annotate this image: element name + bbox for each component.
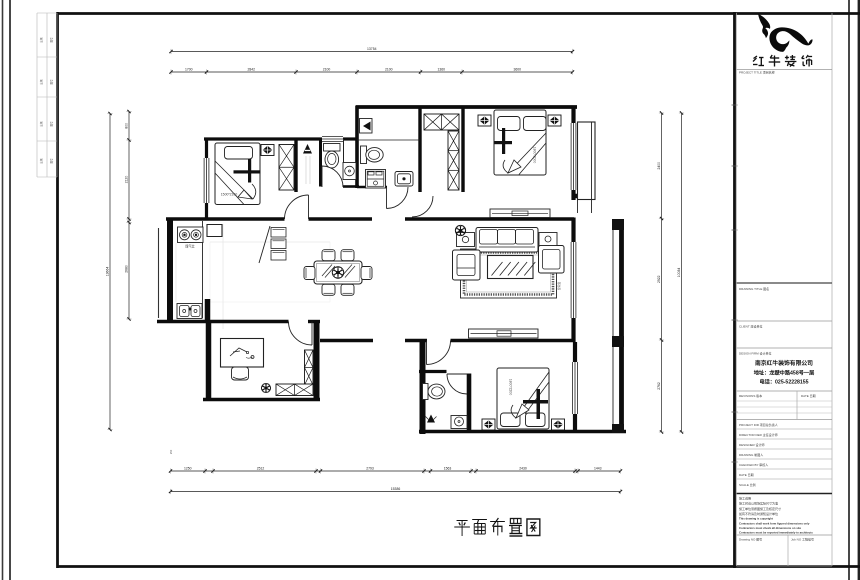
svg-text:1800*2000: 1800*2000 <box>533 147 537 164</box>
svg-text:1700: 1700 <box>185 68 193 72</box>
svg-text:DATE 日期: DATE 日期 <box>739 472 754 477</box>
svg-text:1443: 1443 <box>594 467 602 471</box>
svg-text:1800*2200: 1800*2200 <box>509 379 513 396</box>
svg-text:1360: 1360 <box>437 68 445 72</box>
svg-text:13754: 13754 <box>367 47 377 51</box>
svg-text:2922: 2922 <box>657 275 661 283</box>
svg-text:DRAWING 制图人: DRAWING 制图人 <box>739 452 763 457</box>
svg-text:2100: 2100 <box>385 68 393 72</box>
svg-text:13664: 13664 <box>106 267 110 277</box>
svg-text:施工时请以现场实际尺寸为准: 施工时请以现场实际尺寸为准 <box>739 501 778 506</box>
svg-text:2100: 2100 <box>323 68 331 72</box>
svg-text:2762: 2762 <box>657 382 661 390</box>
svg-text:DATE 日期: DATE 日期 <box>801 393 816 398</box>
svg-text:窗帘盒: 窗帘盒 <box>557 282 561 291</box>
svg-text:CLIENT 建设单位: CLIENT 建设单位 <box>739 324 762 329</box>
svg-text:Contractors shall work form fi: Contractors shall work form figured dime… <box>739 521 810 525</box>
svg-text:南京红牛装饰有限公司: 南京红牛装饰有限公司 <box>755 359 813 367</box>
svg-text:图号: 图号 <box>50 158 54 164</box>
svg-text:1563: 1563 <box>444 467 452 471</box>
svg-text:DIRECTOR DER 主任设计师: DIRECTOR DER 主任设计师 <box>739 432 778 437</box>
svg-text:1250: 1250 <box>184 467 192 471</box>
svg-text:1500*2100: 1500*2100 <box>221 193 238 197</box>
svg-text:15386: 15386 <box>391 487 401 491</box>
svg-text:比例: 比例 <box>40 79 44 85</box>
svg-text:Contractors must be reported i: Contractors must be reported immediately… <box>739 531 813 535</box>
svg-text:Drawing NO 图号: Drawing NO 图号 <box>739 537 762 542</box>
svg-text:地址：龙蹏中路458号一层: 地址：龙蹏中路458号一层 <box>754 369 815 377</box>
svg-text:PROJECT DIR 项目总负责人: PROJECT DIR 项目总负责人 <box>739 422 778 427</box>
svg-text:如有不符请及时通知设计单位: 如有不符请及时通知设计单位 <box>739 511 778 516</box>
svg-text:煤气灶: 煤气灶 <box>185 244 195 249</box>
svg-text:比例: 比例 <box>40 37 44 43</box>
svg-text:施工单位须按图施工及核定尺寸: 施工单位须按图施工及核定尺寸 <box>739 506 781 511</box>
svg-text:3600: 3600 <box>513 68 521 72</box>
svg-text:Contractors must check all dim: Contractors must check all dimensions on… <box>739 526 801 530</box>
svg-text:This drawing is copyright: This drawing is copyright <box>739 517 773 521</box>
svg-text:CHECKED BY 审核人: CHECKED BY 审核人 <box>739 462 768 467</box>
svg-text:2793: 2793 <box>366 467 374 471</box>
svg-text:2120: 2120 <box>125 176 129 184</box>
svg-text:800: 800 <box>125 123 129 129</box>
svg-text:250: 250 <box>169 449 173 454</box>
svg-text:2430: 2430 <box>519 467 527 471</box>
svg-text:SCALE 比例: SCALE 比例 <box>739 482 756 487</box>
svg-text:比例: 比例 <box>40 158 44 164</box>
svg-text:电话：025-52228155: 电话：025-52228155 <box>759 378 808 386</box>
svg-text:图号: 图号 <box>50 37 54 43</box>
svg-text:DESIGNER 设计师: DESIGNER 设计师 <box>739 442 765 447</box>
svg-text:2512: 2512 <box>257 467 265 471</box>
svg-text:2680: 2680 <box>125 265 129 273</box>
svg-text:2842: 2842 <box>247 68 255 72</box>
svg-text:DESIGN FIRM 设计单位: DESIGN FIRM 设计单位 <box>739 351 772 356</box>
svg-text:10084: 10084 <box>677 268 681 278</box>
svg-text:REVISIONS 版本: REVISIONS 版本 <box>739 393 762 398</box>
svg-text:2400: 2400 <box>657 162 661 170</box>
svg-text:PROJECT TITLE 项目名称: PROJECT TITLE 项目名称 <box>739 70 775 75</box>
svg-text:Job NO 工程编号: Job NO 工程编号 <box>791 537 814 542</box>
svg-text:施工说明: 施工说明 <box>739 496 751 501</box>
svg-text:比例: 比例 <box>40 121 44 127</box>
svg-text:DRAWING TITLE 图名: DRAWING TITLE 图名 <box>739 286 769 291</box>
svg-text:图号: 图号 <box>50 121 54 127</box>
svg-text:图号: 图号 <box>50 79 54 85</box>
